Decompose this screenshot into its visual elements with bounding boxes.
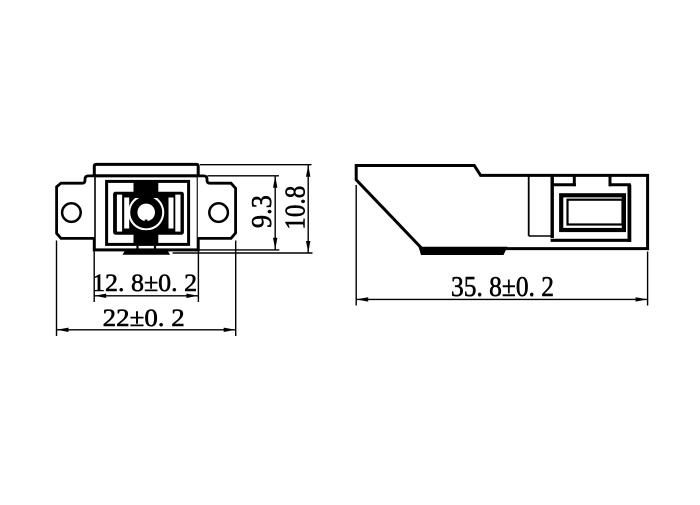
svg-text:22±0. 2: 22±0. 2: [103, 305, 185, 332]
svg-text:9.3: 9.3: [247, 195, 278, 228]
svg-text:35. 8±0. 2: 35. 8±0. 2: [451, 272, 554, 303]
svg-text:12. 8±0. 2: 12. 8±0. 2: [92, 270, 197, 297]
svg-text:10.8: 10.8: [281, 186, 312, 230]
